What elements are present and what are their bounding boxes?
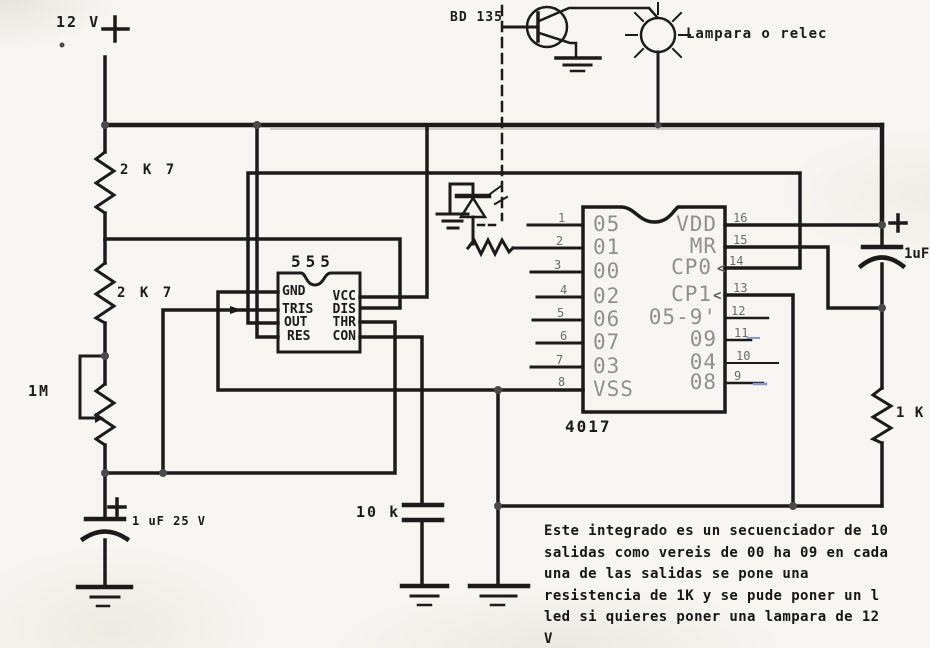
junction-dot: [253, 121, 261, 129]
resistor-r1: [96, 152, 114, 213]
junction-dot: [494, 502, 502, 510]
pin-label-con: CON: [333, 329, 356, 344]
clock-arrow-icon: <: [713, 288, 721, 304]
chip-4017-title: 4017: [565, 417, 612, 436]
pin-label-out: OUT: [284, 315, 307, 330]
pin-number: 14: [729, 254, 743, 268]
pin-label-03: 03: [593, 354, 620, 378]
power-label: 12 V: [56, 13, 100, 31]
pin-label-05: 05: [593, 212, 620, 236]
pin-label-01: 01: [593, 235, 620, 259]
pin-number: 9: [734, 369, 741, 383]
plus-icon: [109, 499, 125, 515]
resistor-r3-label: 1M: [28, 382, 50, 400]
pin-label-08: 08: [690, 370, 717, 394]
resistor-r3-1m: [96, 384, 114, 445]
pot-wiper-arrow-icon: [95, 413, 104, 423]
chip-555-title: 555: [291, 252, 335, 271]
signal-arrow-icon: [230, 306, 242, 314]
wire-vcc-net: [360, 125, 427, 297]
plus-icon: [103, 17, 128, 41]
pin-label-cp0: CP0: [671, 255, 712, 279]
plus-icon: [890, 215, 906, 231]
pin-number: 3: [554, 258, 561, 272]
pin-label-thr: THR: [333, 315, 356, 330]
junction-dot: [789, 502, 797, 510]
wire-mr-net: [725, 247, 882, 308]
pin-number: 2: [556, 234, 563, 248]
wire-led-cathode: [450, 184, 473, 214]
junction-dot: [494, 386, 502, 394]
pin-number: 10: [736, 349, 750, 363]
capacitor-c3-label: 10 k: [356, 503, 400, 521]
pin-label-06: 06: [593, 307, 620, 331]
resistor-r4-1k: [873, 388, 891, 443]
pin-number: 16: [733, 211, 747, 225]
description-note: Este integrado es un secuenciador de 10 …: [544, 521, 896, 648]
resistor-r4-label: 1 K: [896, 405, 924, 421]
pin-label-07: 07: [593, 330, 620, 354]
pin-label-02: 02: [593, 284, 620, 308]
lamp-icon: [641, 18, 675, 52]
resistor-r2: [96, 263, 114, 323]
junction-dot: [101, 469, 109, 477]
capacitor-c2-label: 1uF: [904, 246, 929, 262]
schematic-page: 12 V BD 135 Lampara o relec 2 K 7 2 K 7 …: [0, 0, 930, 648]
capacitor-c3-plates: [404, 505, 442, 520]
pin-number: 1: [558, 211, 565, 225]
ink-dot: [60, 43, 65, 48]
transistor-label: BD 135: [450, 10, 503, 25]
pin-number: 12: [731, 304, 745, 318]
pin-number: 4: [560, 283, 567, 297]
lamp-label: Lampara o relec: [686, 26, 827, 42]
pin-number: 13: [733, 281, 747, 295]
wire-con-net: [360, 337, 422, 504]
wire-res-net: [257, 125, 278, 337]
pin-label-cp1: CP1: [671, 282, 712, 306]
pin-number: 7: [556, 353, 563, 367]
junction-dot: [101, 121, 109, 129]
pin-number: 15: [733, 233, 747, 247]
pin-label-res: RES: [287, 329, 310, 344]
junction-dot: [655, 122, 662, 129]
pin-number: 8: [558, 375, 565, 389]
junction-dot: [159, 469, 167, 477]
pin-number: 5: [557, 306, 564, 320]
pin-label-gnd: GND: [282, 284, 305, 299]
pin-label-vdd: VDD: [676, 212, 717, 236]
clock-arrow-icon: <: [717, 261, 725, 277]
junction-dot: [878, 304, 886, 312]
junction-dot: [878, 221, 886, 229]
pin-number: 11: [734, 326, 748, 340]
pin-label-05-9: 05-9': [649, 305, 717, 329]
pin-label-09: 09: [690, 327, 717, 351]
pin-number: 6: [560, 329, 567, 343]
wire-thr-net: [105, 322, 395, 473]
led-light-arrows-icon: [490, 186, 507, 204]
resistor-r1-label: 2 K 7: [120, 162, 177, 178]
resistor-r2-label: 2 K 7: [117, 285, 174, 301]
capacitor-c1-label: 1 uF 25 V: [132, 514, 206, 528]
capacitor-c1-curve: [83, 532, 127, 540]
resistor-led-series: [468, 240, 513, 254]
pin-label-vss: VSS: [593, 377, 634, 401]
pin-label-00: 00: [593, 259, 620, 283]
junction-dot: [101, 352, 109, 360]
